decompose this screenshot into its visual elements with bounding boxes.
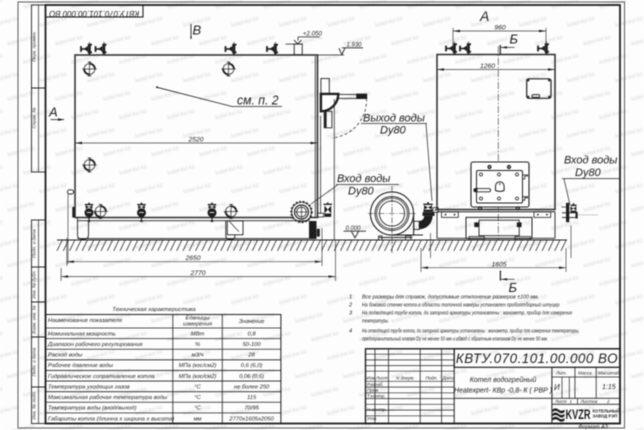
svg-text:Выход воды: Выход воды xyxy=(363,113,425,125)
svg-text:1605: 1605 xyxy=(491,261,506,268)
svg-text:N докум.: N докум. xyxy=(396,376,415,381)
svg-text:И: И xyxy=(554,383,560,392)
svg-text:1260: 1260 xyxy=(480,63,495,70)
svg-text:На отводящей трубе котла, до з: На отводящей трубе котла, до запорной ар… xyxy=(362,328,580,335)
svg-text:Изм: Изм xyxy=(367,376,376,381)
svg-text:1:15: 1:15 xyxy=(602,384,616,391)
svg-text:Лист: Лист xyxy=(554,399,567,404)
svg-text:2650: 2650 xyxy=(184,255,200,262)
svg-text:На подводящей трубе котла, до: На подводящей трубе котла, до запорной а… xyxy=(362,310,572,317)
svg-text:Heatexpert- КВр -0,8- К ( РВР: Heatexpert- КВр -0,8- К ( РВР ) xyxy=(454,388,552,395)
svg-text:0,6 (6,0): 0,6 (6,0) xyxy=(241,363,263,369)
svg-text:Б: Б xyxy=(510,32,519,47)
svg-text:2: 2 xyxy=(606,399,610,404)
svg-text:см. п. 2: см. п. 2 xyxy=(237,92,279,107)
svg-text:Расход воды: Расход воды xyxy=(48,353,83,359)
svg-text:Наименование показателя: Наименование показателя xyxy=(48,318,122,324)
svg-text:Масса: Масса xyxy=(578,371,592,376)
svg-text:Гидравлическое сопративление к: Гидравлическое сопративление котла xyxy=(48,374,155,380)
svg-text:А: А xyxy=(479,8,489,24)
svg-text:70/95: 70/95 xyxy=(244,406,259,412)
svg-text:А: А xyxy=(48,105,58,120)
svg-text:Техническая характеристика: Техническая характеристика xyxy=(112,307,196,313)
svg-text:В: В xyxy=(193,23,202,38)
svg-text:Габариты котла (длинна х ширин: Габариты котла (длинна х ширина х высота… xyxy=(48,416,174,422)
svg-text:Значение: Значение xyxy=(239,319,265,325)
svg-text:Масштаб: Масштаб xyxy=(598,371,620,376)
svg-text:Пров.: Пров. xyxy=(367,388,379,393)
svg-text:4: 4 xyxy=(349,329,352,335)
svg-text:Инв. № дубл.: Инв. № дубл. xyxy=(31,270,36,298)
svg-text:Лист: Лист xyxy=(375,376,388,381)
svg-text:Н.контр.: Н.контр. xyxy=(367,407,386,412)
svg-text:Утв.: Утв. xyxy=(367,416,377,421)
svg-text:Подп.: Подп. xyxy=(426,376,438,381)
svg-text:Листов: Листов xyxy=(580,399,598,404)
svg-text:Т.контр.: Т.контр. xyxy=(367,393,386,398)
svg-text:1.930: 1.930 xyxy=(347,43,363,49)
svg-text:Перв. примен.: Перв. примен. xyxy=(31,31,36,62)
svg-text:Dy80: Dy80 xyxy=(348,186,375,198)
svg-text:°С: °С xyxy=(194,406,201,412)
svg-text:Разраб.: Разраб. xyxy=(367,382,384,387)
svg-text:Котел водогрейный: Котел водогрейный xyxy=(470,376,537,384)
svg-text:+2.050: +2.050 xyxy=(303,31,323,38)
svg-text:2520: 2520 xyxy=(187,137,203,144)
svg-text:Взам. инв. №: Взам. инв. № xyxy=(31,305,36,333)
svg-text:На боковой стенке котла в обла: На боковой стенке котла в области топочн… xyxy=(362,302,560,309)
svg-text:Подп. и дата: Подп. и дата xyxy=(31,229,36,258)
svg-text:Б: Б xyxy=(509,280,518,295)
svg-text:Рабочее давление воды: Рабочее давление воды xyxy=(48,363,114,369)
svg-text:960: 960 xyxy=(494,24,506,31)
svg-text:предохранительный клапан Dy не: предохранительный клапан Dy не менее 50 … xyxy=(362,336,548,343)
svg-text:°С: °С xyxy=(194,384,201,390)
svg-text:ЗАВОД РЭП: ЗАВОД РЭП xyxy=(593,414,618,419)
svg-text:МВт: МВт xyxy=(191,331,205,337)
svg-text:Формат А3: Формат А3 xyxy=(578,424,608,430)
svg-text:0,06 (0,6): 0,06 (0,6) xyxy=(239,374,264,380)
svg-text:Максимальная рабочая температу: Максимальная рабочая температура воды xyxy=(48,395,168,401)
svg-text:Диапазон рабочего регулировани: Диапазон рабочего регулирования xyxy=(47,342,143,348)
svg-text:МПа (кгс/см2): МПа (кгс/см2) xyxy=(179,374,217,380)
svg-text:Дата: Дата xyxy=(442,376,456,381)
svg-text:28: 28 xyxy=(247,353,255,359)
svg-text:°С: °С xyxy=(194,395,201,401)
svg-text:50-100: 50-100 xyxy=(243,342,262,348)
svg-text:м3/ч: м3/ч xyxy=(192,353,204,359)
svg-text:Вход воды: Вход воды xyxy=(337,173,390,185)
svg-text:Номинальная мощность: Номинальная мощность xyxy=(48,331,116,337)
svg-text:Вход воды: Вход воды xyxy=(564,155,617,167)
svg-text:Лит.: Лит. xyxy=(555,371,567,376)
svg-text:мм: мм xyxy=(194,416,202,422)
svg-text:Dy80: Dy80 xyxy=(380,125,407,137)
svg-text:Все размеры для справок, допус: Все размеры для справок, допустимые откл… xyxy=(362,295,539,301)
svg-text:Подп. и дата: Подп. и дата xyxy=(31,347,36,376)
svg-text:КВТУ.070.101.00.000 ВО: КВТУ.070.101.00.000 ВО xyxy=(456,351,618,366)
svg-text:не более 250: не более 250 xyxy=(234,384,270,390)
svg-text:0,8: 0,8 xyxy=(248,331,257,337)
svg-text:Dy80: Dy80 xyxy=(575,167,602,179)
svg-text:МПа (кгс/см2): МПа (кгс/см2) xyxy=(179,363,217,369)
svg-text:Справ. №: Справ. № xyxy=(31,108,36,129)
svg-text:1: 1 xyxy=(570,399,573,404)
svg-text:Температура уходящих газов: Температура уходящих газов xyxy=(48,384,130,390)
svg-text:Температура воды (вход/выход): Температура воды (вход/выход) xyxy=(48,406,137,412)
svg-text:КВТУ.070.101.00.000 ВО: КВТУ.070.101.00.000 ВО xyxy=(49,9,139,18)
svg-text:115: 115 xyxy=(247,395,257,401)
svg-text:%: % xyxy=(195,342,200,348)
svg-text:2770х1605х2050: 2770х1605х2050 xyxy=(228,416,274,422)
svg-text:1: 1 xyxy=(349,295,352,301)
svg-text:2770: 2770 xyxy=(189,270,205,277)
svg-text:Инв. № подл.: Инв. № подл. xyxy=(31,391,36,420)
svg-text:измерения: измерения xyxy=(183,322,212,328)
svg-text:температуры.: температуры. xyxy=(362,319,389,325)
svg-text:0.000: 0.000 xyxy=(346,226,362,232)
svg-text:KVZR: KVZR xyxy=(566,407,591,422)
